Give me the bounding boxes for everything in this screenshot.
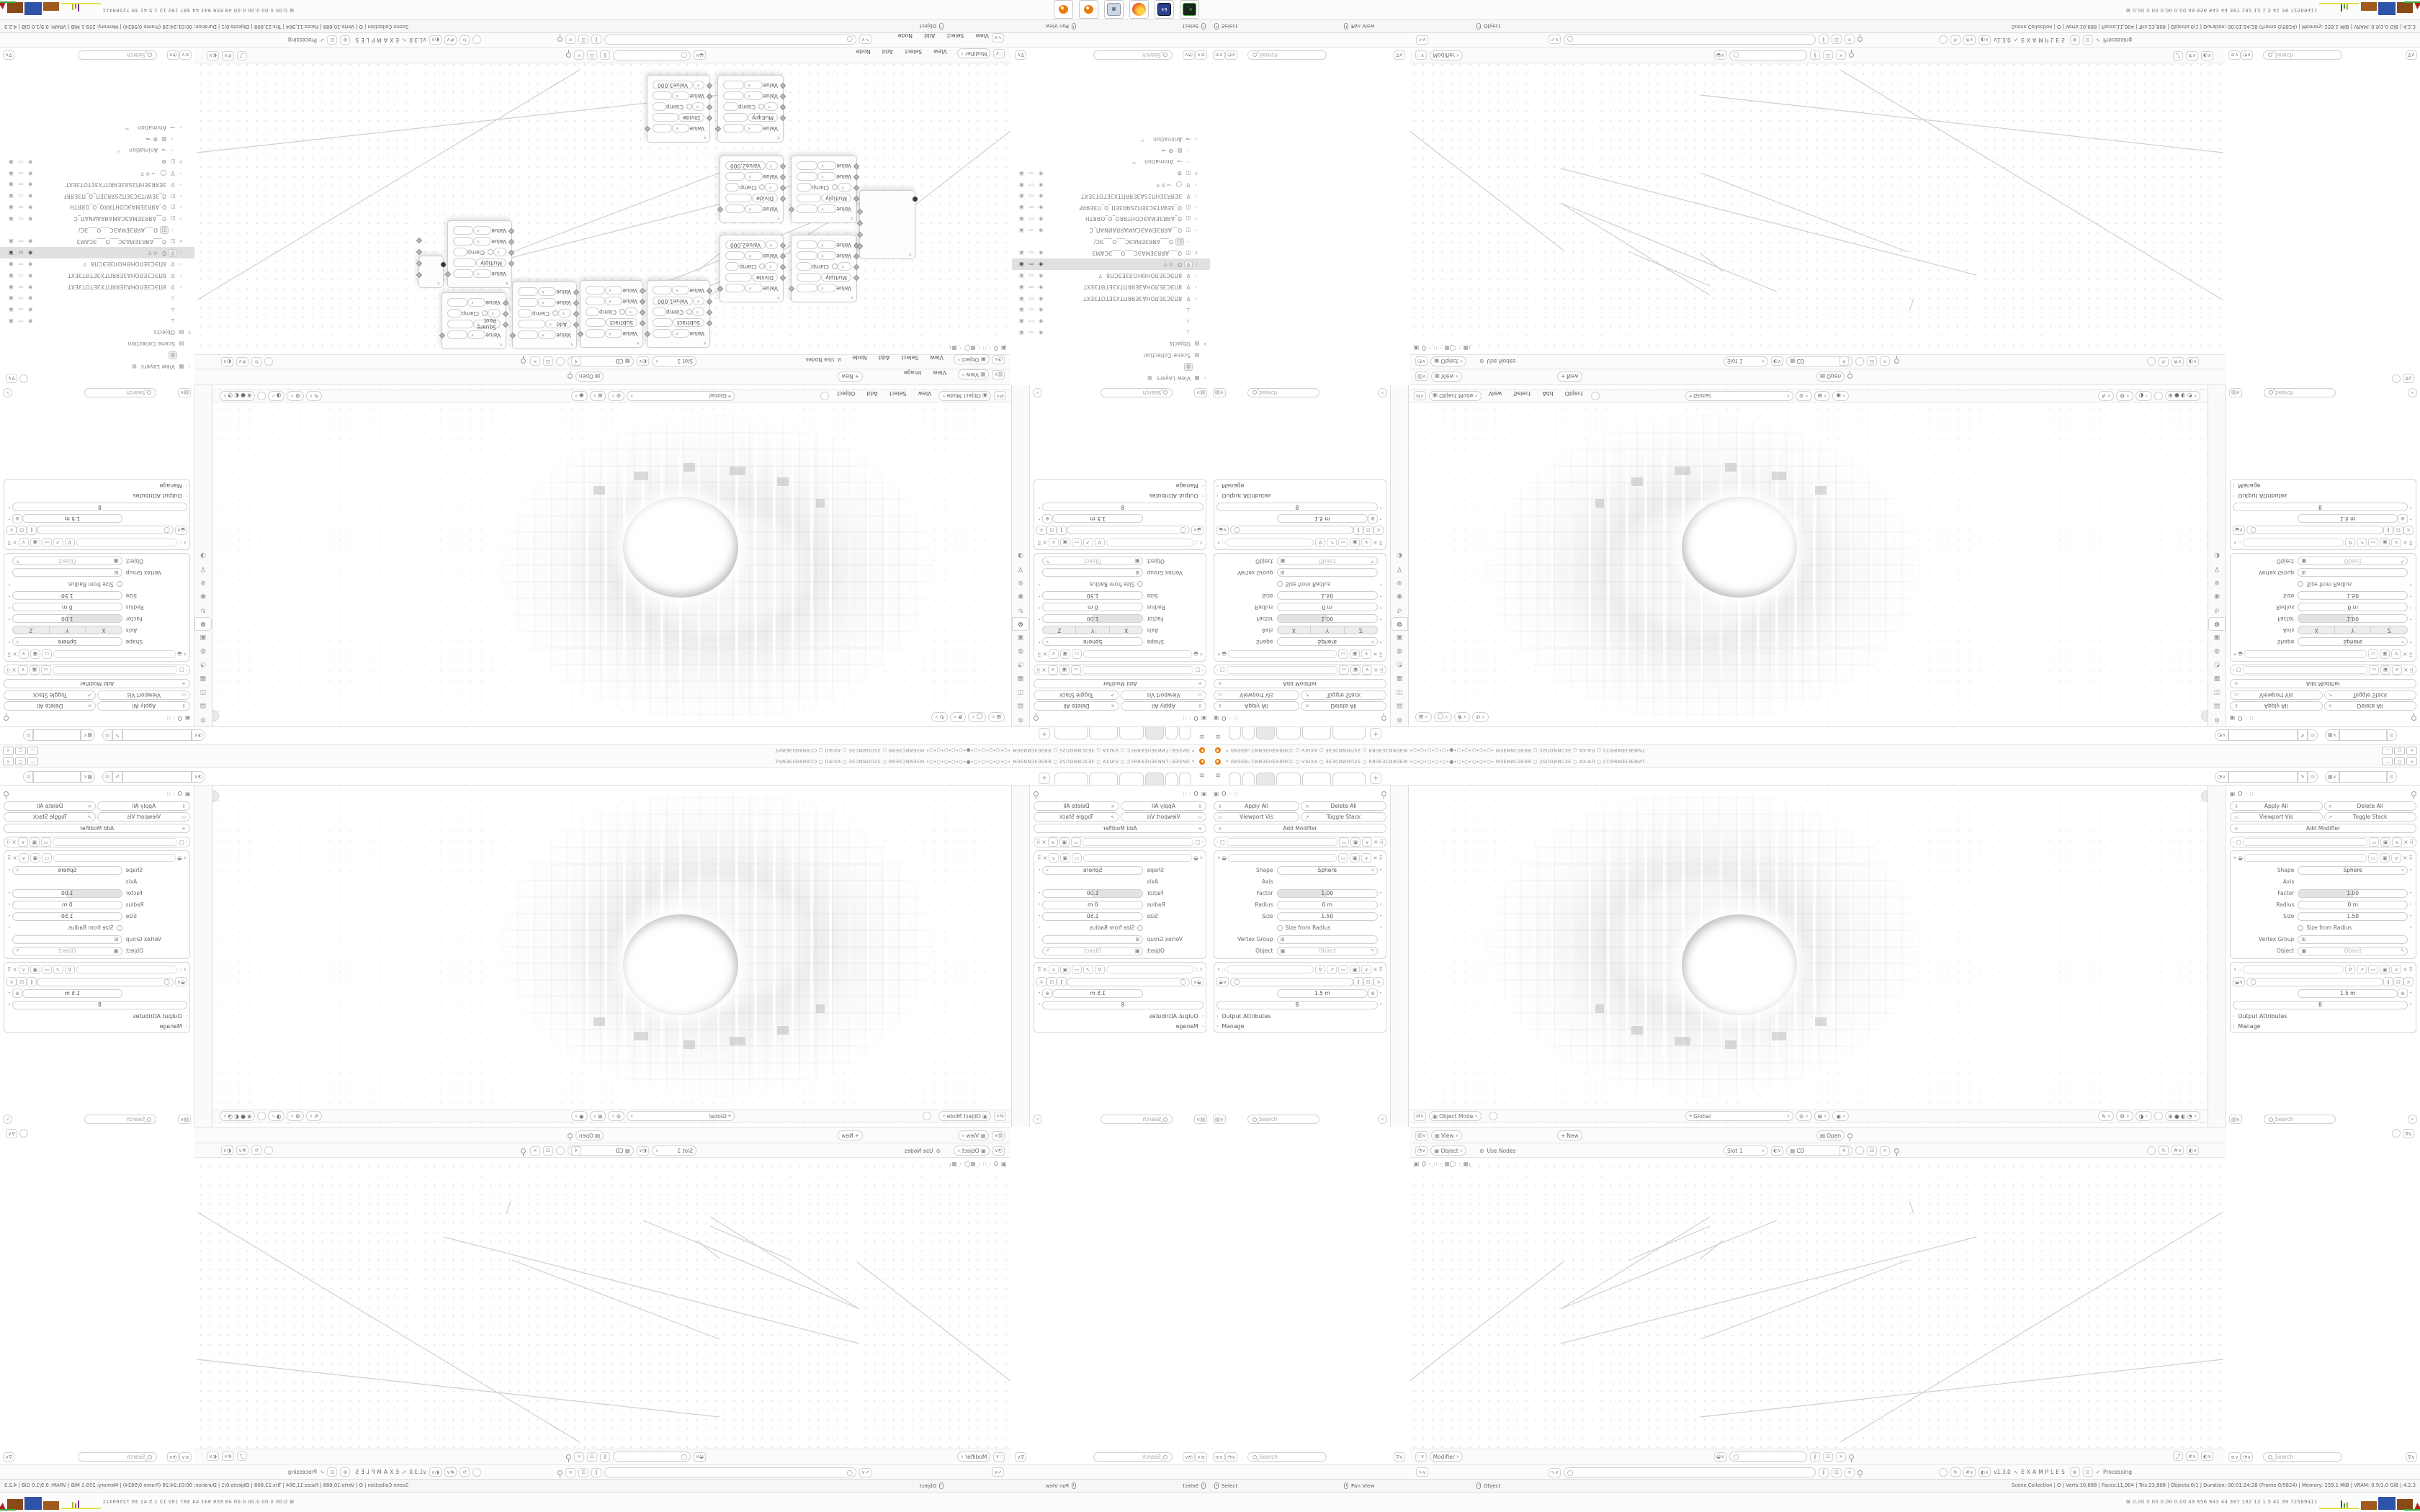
properties-tab-icon[interactable]: ⚙ (194, 713, 212, 726)
minimize-button[interactable]: — (27, 757, 38, 765)
outliner-row[interactable]: › ◫ O_АЯRЗЕМАЭСОНТЯRО_О_ОЯRТН ◉ ▭ ▣ (1012, 213, 1210, 225)
close-button[interactable]: × (3, 747, 14, 755)
outliner-search-input[interactable]: Search (1247, 1452, 1327, 1462)
node-collapse-chevron[interactable]: ∨ (448, 279, 511, 287)
workspace-tab[interactable] (1179, 773, 1191, 785)
gizmo-circle[interactable] (472, 1468, 481, 1477)
properties-tab-icon[interactable]: ◫ (1012, 685, 1029, 699)
clamp-checkbox[interactable] (488, 250, 493, 256)
new-material-button[interactable] (1855, 1146, 1864, 1155)
dropdown-toggle[interactable]: ∨ (2392, 837, 2402, 847)
fake-user-toggle[interactable]: ∥ (591, 1468, 601, 1477)
value-field[interactable] (725, 205, 745, 214)
gizmo-circle[interactable] (264, 1146, 273, 1155)
properties-tab-icon[interactable]: ◑ (1391, 549, 1408, 562)
expand-chevron[interactable]: ∨ (1193, 171, 1200, 176)
viewport-overlay-pill[interactable]: #∨ (1454, 712, 1471, 722)
decorator-dot[interactable]: • (6, 902, 12, 907)
filter-button[interactable]: ∇∨ (2403, 1129, 2414, 1138)
expand-chevron[interactable]: › (177, 261, 184, 267)
restore-button[interactable]: ▢ (2394, 747, 2405, 755)
decorator-dot[interactable]: • (1036, 605, 1042, 610)
axis-option[interactable]: X (1109, 626, 1144, 635)
expand-chevron[interactable]: › (169, 148, 176, 153)
node-tree-field[interactable]: ◯ (1729, 1452, 1807, 1462)
value-field[interactable] (725, 284, 745, 293)
render-disable-icon[interactable]: ▣ (9, 216, 14, 222)
outliner-row[interactable]: ⊥ ◉ ▭ ▣ (0, 304, 194, 315)
size-from-radius-radio[interactable] (1137, 925, 1143, 931)
close-icon[interactable]: × (2403, 526, 2414, 535)
nodes-modifier-slot[interactable]: ∨ ∷ ∇ ↗ ▭ ▣ ∨ × ⠿ (6, 964, 187, 975)
preview-sphere-icon[interactable]: ◐∨ (1771, 357, 1783, 366)
toggle-stack-button[interactable]: ↗ Toggle Stack (1034, 690, 1119, 700)
render-toggle[interactable]: ▣ (2380, 538, 2390, 547)
expand-chevron[interactable]: › (177, 171, 184, 176)
filter-circle[interactable] (19, 1129, 28, 1138)
display-toggle[interactable]: ▭ (2368, 853, 2378, 863)
render-toggle[interactable]: ▣ (2380, 965, 2390, 974)
outliner-row[interactable]: › ∇ 8ПЭСЗЕЛОНАЗЕЯRПТХЗЕТОТЗЕХТ ◉ ▭ ▣ (0, 282, 194, 293)
gn-distance-field[interactable]: 1.5 m (22, 989, 122, 998)
outliner-row[interactable]: › ∇ ◯ ↝ ⚙ ∇ ◉ ▭ ▣ (0, 168, 194, 179)
render-disable-icon[interactable]: ▣ (1019, 284, 1024, 290)
value-field[interactable] (653, 103, 666, 112)
filter-toggle[interactable]: ∇ (1095, 965, 1105, 974)
filter-toggle[interactable]: ∇ (2345, 538, 2355, 547)
units-toggle[interactable]: ⊕ (12, 514, 22, 523)
vertex-group-field[interactable]: ⊞ (12, 935, 122, 944)
render-disable-icon[interactable]: ▣ (9, 204, 14, 210)
expand-chevron[interactable]: › (1193, 204, 1200, 210)
expand-chevron[interactable]: ∨ (186, 330, 193, 336)
pin-icon[interactable] (557, 1470, 563, 1475)
viewport-menu-item[interactable]: View (1489, 391, 1502, 397)
modifier-name-field[interactable] (2243, 539, 2344, 546)
nodes-modifier-slot[interactable]: ∨ ∷ ∇ ↗ ▭ ▣ ∨ × ⠿ (1216, 964, 1384, 975)
image-mode-select[interactable]: ▦View∨ (958, 1130, 989, 1140)
material-slot-select[interactable]: Slot 1∨ (652, 1146, 696, 1156)
viewport-3d[interactable]: ⇄∨ ▣Object Mode∨ ⌖Global∨ ⊘∨ ⊞∨ ◉∨ ✎∨ ⚙∨… (212, 786, 1010, 1127)
operation-select[interactable]: ∨ (605, 287, 623, 295)
viewport-menu-item[interactable]: Add (1543, 391, 1554, 397)
value-field[interactable] (653, 330, 672, 338)
drag-handle-icon[interactable]: ⠿ (7, 651, 12, 657)
size-from-radius-radio[interactable] (1277, 925, 1283, 931)
taskbar-app-icon[interactable] (1129, 0, 1149, 19)
units-toggle[interactable]: ⊕ (1042, 514, 1052, 523)
filter-mode-button[interactable]: ≡∨ (2228, 50, 2241, 60)
menu-icon[interactable]: ≡ (1199, 732, 1205, 740)
hide-toggle-icon[interactable]: ◉ (1039, 261, 1043, 267)
properties-tab-icon[interactable]: ⊕ (194, 576, 212, 590)
taskbar-app-icon[interactable]: ▦ (1104, 0, 1124, 19)
taskbar-app-icon[interactable] (1054, 0, 1073, 19)
manage-collapse[interactable]: ›Manage (6, 1023, 187, 1030)
panel-icon[interactable]: ⊡ (2083, 1467, 2093, 1477)
outliner-row[interactable]: ∨ ▤ Objects ◉ ▭ ▣ (0, 327, 194, 338)
decorator-dot[interactable]: • (6, 868, 12, 873)
restore-button[interactable]: ▢ (15, 747, 26, 755)
proportional-editing-toggle[interactable]: ◉∨ (571, 391, 588, 401)
expand-chevron[interactable]: › (177, 284, 184, 290)
properties-tab-icon[interactable]: ◑ (1012, 549, 1029, 562)
gn-menu-item[interactable]: View (975, 32, 989, 39)
add-modifier-button[interactable]: + Add Modifier (4, 824, 190, 833)
operation-select[interactable]: ∨ (745, 252, 763, 261)
add-modifier-button[interactable]: + Add Modifier (1214, 679, 1386, 688)
add-modifier-button[interactable]: + Add Modifier (1034, 679, 1206, 688)
clamp-checkbox[interactable] (619, 310, 625, 315)
node-collapse-chevron[interactable]: ∨ (720, 215, 783, 222)
toggle-stack-button[interactable]: ↗ Toggle Stack (1034, 812, 1119, 822)
workspace-tab[interactable] (1119, 727, 1144, 739)
viewport-disable-icon[interactable]: ▭ (1029, 216, 1034, 222)
operation-select[interactable]: Divide∨ (678, 114, 704, 122)
tool-circle[interactable] (820, 392, 829, 400)
drag-handle-icon[interactable]: ⠿ (1379, 539, 1384, 546)
modifier-slot-expanded[interactable]: ∨ ◒ ▭ ▣ ∨ × ⠿ (1036, 649, 1204, 660)
operation-select[interactable]: Multiply∨ (821, 194, 851, 203)
viewport-overlay-pill[interactable]: ↻∨ (1472, 712, 1489, 722)
value-field[interactable] (586, 319, 606, 328)
viewport-menu-item[interactable]: Add (866, 391, 877, 397)
render-disable-icon[interactable]: ▣ (1019, 193, 1024, 199)
editor-type-button[interactable]: ▤∨ (2229, 388, 2242, 397)
value-field[interactable] (447, 310, 462, 318)
editor-type-button[interactable]: ∿∨ (992, 33, 1004, 42)
pin-icon[interactable]: ✎ (112, 730, 122, 742)
overlay-icon[interactable]: ◐∨ (429, 35, 442, 45)
editor-type-button[interactable]: ⇄∨ (994, 392, 1006, 401)
node-tree-field[interactable]: ◯ (1067, 526, 1190, 535)
viewport-menu-item[interactable]: Object (1565, 391, 1583, 397)
operation-select[interactable]: ∨ (765, 184, 778, 192)
dropdown-toggle[interactable]: ∨ (1049, 649, 1059, 659)
render-toggle[interactable]: ▣ (1350, 665, 1361, 675)
properties-search-input[interactable]: Search (1247, 1115, 1319, 1124)
viewport-overlay-pill[interactable]: ↻∨ (931, 712, 948, 722)
fake-user-toggle[interactable]: ∥ (1810, 1452, 1820, 1462)
outliner-search-input[interactable]: Search (2263, 1452, 2342, 1462)
size-field[interactable]: 1.50 (1042, 912, 1143, 921)
viewport-disable-icon[interactable]: ▭ (19, 171, 24, 176)
decorator-dot[interactable]: • (1036, 902, 1042, 907)
value-field[interactable] (653, 92, 672, 101)
close-icon[interactable]: × (2403, 651, 2407, 657)
properties-tab-icon[interactable]: ⚙ (2208, 617, 2226, 631)
transform-orientation-select[interactable]: ⌖Global∨ (1685, 391, 1793, 401)
expand-chevron[interactable]: › (1193, 136, 1200, 142)
modifier-slot-expanded[interactable]: ∨ ◒ ▭ ▣ ∨ × ⠿ (6, 649, 187, 660)
render-toggle[interactable]: ▣ (1059, 837, 1070, 847)
outliner-row[interactable]: ⊥ ◉ ▭ ▣ (1012, 315, 1210, 327)
units-toggle[interactable]: ⊕ (2398, 989, 2408, 998)
node-tree-type-select[interactable]: ◒∨ (175, 977, 187, 986)
add-modifier-button[interactable]: + Add Modifier (4, 679, 190, 688)
properties-tab-icon[interactable]: ◉ (194, 590, 212, 603)
pin-icon[interactable] (566, 1454, 571, 1459)
viewport-disable-icon[interactable]: ▭ (19, 284, 24, 290)
decorator-dot[interactable]: • (6, 582, 12, 587)
display-toggle[interactable]: ▭ (1072, 853, 1082, 863)
node-tree-type-select[interactable]: ◒∨ (1191, 526, 1204, 535)
delete-all-button[interactable]: × Delete All (1301, 801, 1386, 811)
decorator-dot[interactable]: • (1378, 891, 1384, 896)
restore-button[interactable]: ▢ (2394, 757, 2405, 765)
properties-tab-icon[interactable]: ⊕ (2208, 576, 2226, 590)
properties-tab-icon[interactable]: ▤ (1012, 699, 1029, 713)
display-mode-button[interactable]: ◔∨ (1183, 1452, 1195, 1462)
outliner-row[interactable]: ⊥ ◉ ▭ ▣ (1012, 327, 1210, 338)
viewport-disable-icon[interactable]: ▭ (19, 159, 24, 165)
pin-icon[interactable] (568, 374, 573, 379)
manage-collapse[interactable]: ›Manage (1036, 482, 1204, 489)
decorator-dot[interactable]: • (1036, 1002, 1042, 1007)
filter-circle[interactable] (2392, 1129, 2401, 1138)
nodes-modifier-slot[interactable]: ∨ ∷ ∇ ↗ ▭ ▣ ∨ × ⠿ (2233, 964, 2414, 975)
properties-tab-icon[interactable]: ▤ (194, 699, 212, 713)
copy-icon[interactable]: ⊡ (2393, 526, 2403, 535)
modifier-name-field[interactable] (1083, 650, 1192, 658)
render-toggle[interactable]: ▣ (30, 837, 40, 847)
pin-icon[interactable] (1894, 359, 1899, 364)
value-field[interactable] (797, 263, 812, 271)
proportional-editing-toggle[interactable]: ◉∨ (1832, 1111, 1849, 1121)
new-material-button[interactable] (1855, 357, 1864, 366)
workspace-tab-active[interactable] (1145, 773, 1164, 785)
node-collapse-chevron[interactable]: ∨ (581, 339, 642, 347)
copy-icon[interactable]: ⊡ (17, 526, 27, 535)
modifier-name-field[interactable] (1083, 666, 1194, 674)
snap-grid-icon[interactable]: #∨ (222, 1452, 234, 1461)
nodes-modifier-slot[interactable]: ∨ ∷ ∇ ↗ ▭ ▣ ∨ × ⠿ (6, 537, 187, 548)
modifier-name-field[interactable] (1227, 539, 1314, 546)
axis-option[interactable]: Y (1311, 626, 1345, 635)
properties-tab-icon[interactable]: ◉ (2208, 590, 2226, 603)
copy-icon[interactable]: ⊡ (578, 35, 588, 45)
value-field[interactable] (453, 238, 473, 246)
workspace-tab-active[interactable] (1256, 773, 1275, 785)
display-toggle[interactable]: ▭ (1338, 965, 1348, 974)
workspace-tab[interactable] (1229, 773, 1241, 785)
close-icon[interactable]: × (2403, 667, 2408, 673)
close-icon[interactable]: × (1043, 966, 1047, 973)
render-disable-icon[interactable]: ▣ (1019, 273, 1024, 279)
properties-search-input[interactable]: Search (1247, 388, 1319, 397)
properties-tab-icon[interactable]: ⊕ (1012, 576, 1029, 590)
modifier-name-field[interactable] (2244, 650, 2367, 658)
properties-tab-icon[interactable]: ↻ (2208, 603, 2226, 617)
outliner-row[interactable]: › ↝ Animation ⁴² ◉ ▭ ▣ (0, 122, 194, 133)
drag-handle-icon[interactable]: ⠿ (2410, 667, 2414, 673)
value-field[interactable]: Value1.000 (653, 297, 693, 306)
viewport-disable-icon[interactable]: ▭ (1029, 228, 1034, 233)
menu-icon[interactable]: ≡ (1215, 772, 1221, 780)
properties-tab-icon[interactable]: ▦ (1012, 672, 1029, 685)
minimize-button[interactable]: — (27, 747, 38, 755)
hide-toggle-icon[interactable]: ◉ (1039, 307, 1043, 312)
display-toggle[interactable]: ▭ (42, 538, 52, 547)
clamp-checkbox[interactable] (832, 264, 838, 270)
hide-toggle-icon[interactable]: ◉ (1039, 330, 1043, 336)
close-icon[interactable]: × (1373, 977, 1384, 986)
operation-select[interactable]: Subtract∨ (606, 319, 637, 328)
operation-select[interactable]: ∨ (693, 81, 704, 90)
editor-type-button[interactable]: ▥∨ (992, 1131, 1005, 1140)
viewport-disable-icon[interactable]: ▭ (1029, 296, 1034, 302)
nodes-modifier-slot[interactable]: ∨ ∷ ∇ ↗ ▭ ▣ ∨ × ⠿ (1036, 964, 1204, 975)
dropdown-toggle[interactable]: ∨ (18, 837, 28, 847)
drag-handle-icon[interactable]: ⠿ (1037, 651, 1041, 657)
outliner-row[interactable]: › ▦ View Layers ▦ ◉ ▭ ▣ (1012, 372, 1210, 384)
decorator-dot[interactable]: • (2408, 505, 2414, 510)
tool-icon[interactable]: ⊕ (2070, 35, 2080, 45)
editor-type-button[interactable]: ▥∨ (1415, 372, 1428, 382)
toggle-stack-button[interactable]: ↗ Toggle Stack (2324, 812, 2417, 822)
delete-all-button[interactable]: × Delete All (2324, 801, 2417, 811)
viewport-disable-icon[interactable]: ▭ (1029, 284, 1034, 290)
viewport-menu-item[interactable]: Object (837, 391, 855, 397)
expand-chevron[interactable]: ∨ (177, 159, 184, 165)
modifier-slot-expanded[interactable]: ∨ ◒ ▭ ▣ ∨ × ⠿ (6, 852, 187, 863)
close-icon[interactable]: × (1373, 667, 1378, 673)
copy-icon[interactable]: ⊡ (1867, 357, 1877, 366)
tree-type-icon[interactable]: ◒∨ (1714, 51, 1726, 60)
scene-name-field[interactable] (2228, 730, 2298, 742)
pin-icon[interactable] (557, 37, 563, 42)
delete-all-button[interactable]: × Delete All (2324, 701, 2417, 711)
snap-icon[interactable]: ↻ (460, 1467, 470, 1477)
value-field[interactable] (723, 114, 748, 122)
decorator-dot[interactable]: • (6, 605, 12, 610)
properties-tab-icon[interactable]: ⚙ (194, 617, 212, 631)
value-field[interactable] (723, 92, 744, 101)
close-icon[interactable]: × (2403, 839, 2408, 845)
display-mode-button[interactable]: ◔∨ (1225, 1452, 1237, 1462)
viewport-disable-icon[interactable]: ▭ (1029, 250, 1034, 256)
pin-icon[interactable]: ✎ (2298, 771, 2308, 783)
editor-type-button[interactable]: ▥∨ (992, 370, 1005, 379)
operation-select[interactable]: Divide∨ (752, 274, 778, 282)
operation-select[interactable]: ∨ (672, 330, 690, 338)
size-field[interactable]: 1.50 (1042, 592, 1143, 600)
filter-button[interactable]: ∇∨ (1015, 50, 1026, 60)
outliner-row[interactable]: › ∇ 8ПЭСЗЕЛОНΘНОЛЗЕЭСП8 ∇ ◉ ▭ ▣ (1012, 270, 1210, 282)
factor-slider[interactable]: 1.00 (2298, 615, 2408, 624)
delete-all-button[interactable]: × Delete All (1034, 801, 1119, 811)
gn-menu-item[interactable]: Select (946, 32, 964, 39)
properties-tab-icon[interactable]: ◍ (1012, 644, 1029, 658)
decorator-dot[interactable]: • (2408, 914, 2414, 919)
operation-select[interactable]: ∨ (672, 125, 690, 133)
pin-icon[interactable] (1381, 791, 1386, 796)
viewport-disable-icon[interactable]: ▭ (19, 318, 24, 324)
pin-icon[interactable] (1857, 37, 1863, 42)
collapse-button[interactable]: ∨ (1033, 1115, 1042, 1124)
editor-type-button[interactable]: ◔∨ (1415, 1146, 1428, 1156)
operation-select[interactable]: ∨ (745, 173, 763, 181)
viewport-menu-item[interactable]: Select (1513, 391, 1531, 397)
region-corner-nub[interactable] (2201, 710, 2208, 721)
value-field[interactable] (518, 331, 538, 340)
render-toggle[interactable]: ▣ (1060, 538, 1070, 547)
snap-toggle[interactable]: ⊘∨ (608, 1111, 624, 1121)
vertex-group-field[interactable]: ⊞ (2298, 935, 2408, 944)
snap-grid-icon[interactable]: #∨ (236, 357, 248, 366)
render-disable-icon[interactable]: ▣ (1019, 204, 1024, 210)
size-from-radius-radio[interactable] (2298, 925, 2303, 931)
workspace-tab[interactable] (1119, 773, 1144, 785)
factor-slider[interactable]: 1.00 (1042, 615, 1143, 624)
hide-toggle-icon[interactable]: ◉ (1039, 250, 1043, 256)
viewport-overlay-pill[interactable]: ◯∨ (1434, 712, 1452, 722)
nodes-modifier-slot[interactable]: ∨ ∷ ∇ ↗ ▭ ▣ ∨ × ⠿ (1036, 537, 1204, 548)
material-datablock-field[interactable]: ▦CD 4 (568, 356, 634, 366)
render-disable-icon[interactable]: ▣ (9, 181, 14, 187)
render-disable-icon[interactable]: ▣ (1019, 296, 1024, 302)
size-from-radius-radio[interactable] (117, 925, 122, 931)
expand-chevron[interactable]: › (1193, 193, 1200, 199)
gn-menu-item[interactable]: Node (898, 32, 913, 39)
size-field[interactable]: 1.50 (2298, 592, 2408, 600)
use-nodes-checkbox[interactable]: ⊘ (1479, 359, 1484, 365)
edit-toggle[interactable]: ↗ (2357, 538, 2367, 547)
node-menu-item[interactable]: View (930, 354, 944, 361)
operation-select[interactable]: ∨ (766, 162, 778, 171)
overlays-pill[interactable]: ◑∨ (268, 1111, 284, 1121)
copy-icon[interactable]: ⊡ (2393, 977, 2403, 986)
value-field[interactable] (797, 194, 821, 203)
viewport-disable-icon[interactable]: ▭ (19, 273, 24, 279)
operation-select[interactable]: ∨ (817, 241, 837, 250)
hide-toggle-icon[interactable]: ◉ (28, 171, 32, 176)
dropdown-toggle[interactable]: ∨ (1049, 538, 1059, 547)
snap-icon[interactable]: ↻ (1950, 1467, 1960, 1477)
display-toggle[interactable]: ▭ (2368, 538, 2378, 547)
editor-type-button[interactable]: ∷∨ (1415, 51, 1427, 60)
modifier-name-field[interactable] (1083, 838, 1194, 846)
pin-icon[interactable] (2411, 716, 2416, 721)
gizmo-circle[interactable] (2147, 358, 2156, 366)
axis-toggle-group[interactable]: XYZ (12, 626, 122, 635)
hide-toggle-icon[interactable]: ◉ (1039, 216, 1043, 222)
copy-icon[interactable]: ⊡ (543, 1146, 553, 1156)
factor-slider[interactable]: 1.00 (1042, 889, 1143, 898)
close-icon[interactable]: × (12, 667, 17, 673)
render-toggle[interactable]: ▣ (1060, 649, 1070, 659)
close-icon[interactable]: × (565, 35, 575, 45)
toggle-stack-button[interactable]: ↗ Toggle Stack (4, 812, 97, 822)
display-mode-button[interactable]: ◔∨ (167, 50, 179, 60)
delete-all-button[interactable]: × Delete All (1301, 701, 1386, 711)
object-field[interactable]: ▣ Object ✎ (1042, 947, 1143, 955)
decorator-dot[interactable]: • (1378, 1002, 1384, 1007)
image-mode-select[interactable]: ▦View∨ (1431, 1130, 1462, 1140)
display-toggle[interactable]: ▭ (2368, 965, 2378, 974)
drag-handle-icon[interactable]: ⠿ (7, 966, 12, 973)
output-attributes-collapse[interactable]: ›Output Attributes (1216, 1013, 1384, 1020)
axis-option[interactable]: Y (2335, 626, 2372, 635)
snap-grid-icon[interactable]: #∨ (2172, 1146, 2184, 1155)
copy-icon[interactable]: ⊡ (1823, 1452, 1833, 1462)
new-material-button[interactable] (556, 1146, 565, 1155)
decorator-dot[interactable]: • (6, 593, 12, 598)
value-field[interactable] (518, 310, 532, 318)
copy-icon[interactable]: ⊡ (23, 730, 33, 742)
snap-icon[interactable]: ↻ (251, 1146, 261, 1155)
outliner-row[interactable]: › ∇ ◯ ↝ ⚙ ∇ ◉ ▭ ▣ (1012, 179, 1210, 191)
